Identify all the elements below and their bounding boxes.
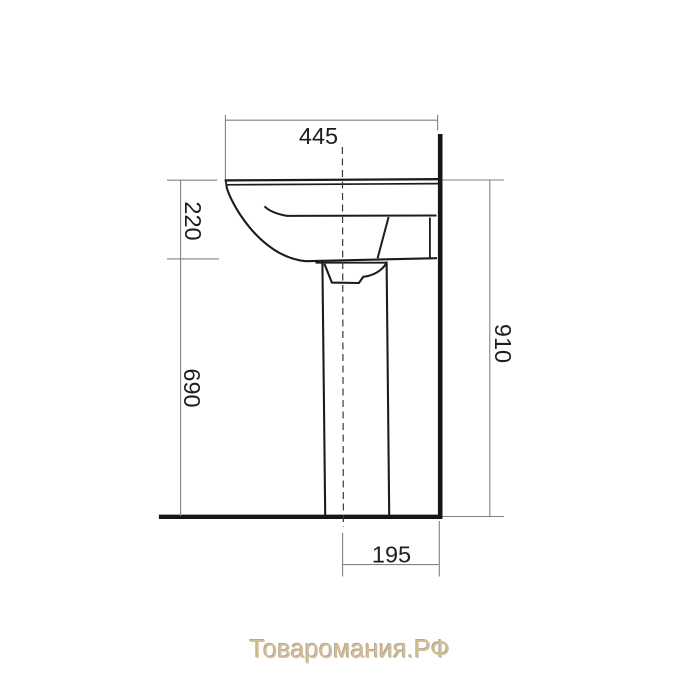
- svg-text:195: 195: [372, 541, 411, 567]
- svg-text:445: 445: [299, 123, 338, 149]
- svg-text:910: 910: [490, 324, 516, 363]
- svg-text:Товаромания.РФ: Товаромания.РФ: [250, 636, 451, 664]
- svg-text:690: 690: [179, 368, 205, 407]
- svg-text:220: 220: [180, 201, 206, 240]
